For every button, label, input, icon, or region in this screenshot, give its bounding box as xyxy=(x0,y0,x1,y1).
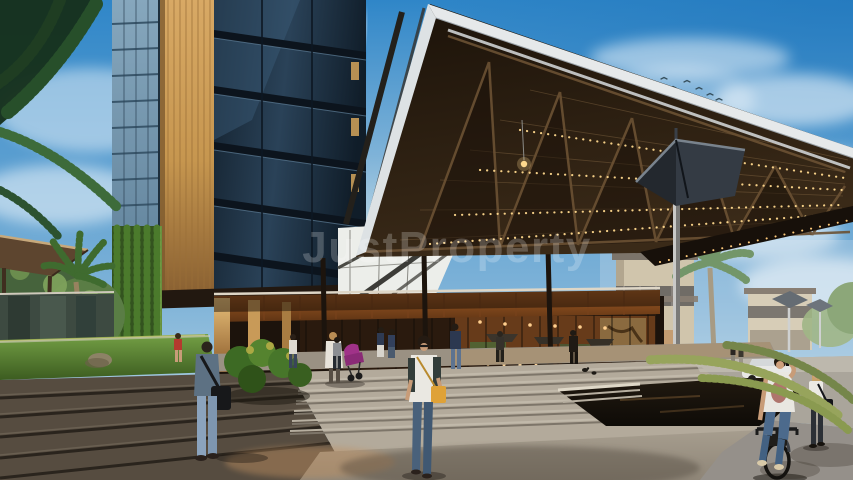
watermark-text: JustProperty xyxy=(302,223,591,272)
architectural-render-photo: JustProperty xyxy=(0,0,853,480)
watermark: JustProperty xyxy=(302,223,591,272)
tower-wood-band xyxy=(160,0,214,292)
yellow-crossbody-bag xyxy=(431,386,446,403)
